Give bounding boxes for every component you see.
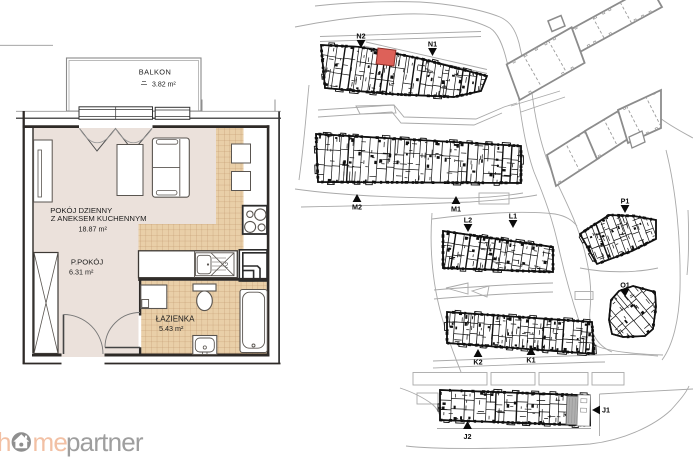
svg-text:K2: K2 bbox=[473, 358, 482, 367]
svg-text:J1: J1 bbox=[602, 406, 610, 415]
svg-text:3.82 m²: 3.82 m² bbox=[152, 82, 176, 89]
svg-text:P.POKÓJ: P.POKÓJ bbox=[71, 258, 103, 267]
svg-text:Z ANEKSEM KUCHENNYM: Z ANEKSEM KUCHENNYM bbox=[51, 214, 147, 223]
svg-text:N1: N1 bbox=[428, 40, 437, 49]
svg-text:N2: N2 bbox=[356, 32, 365, 41]
svg-text:18.87 m²: 18.87 m² bbox=[79, 225, 108, 234]
svg-text:K1: K1 bbox=[526, 356, 535, 365]
svg-text:ŁAZIENKA: ŁAZIENKA bbox=[156, 315, 195, 324]
svg-text:O1: O1 bbox=[620, 281, 630, 290]
svg-text:5.43 m²: 5.43 m² bbox=[159, 324, 184, 333]
svg-text:L1: L1 bbox=[509, 212, 517, 221]
svg-text:L2: L2 bbox=[464, 216, 472, 225]
svg-text:M1: M1 bbox=[451, 205, 461, 214]
svg-text:J2: J2 bbox=[464, 432, 472, 441]
svg-text:BALKON: BALKON bbox=[139, 68, 171, 77]
svg-text:P1: P1 bbox=[621, 197, 630, 206]
svg-text:partner: partner bbox=[66, 427, 144, 457]
svg-text:2: 2 bbox=[225, 263, 229, 270]
svg-text:6.31 m²: 6.31 m² bbox=[69, 267, 94, 276]
svg-text:h: h bbox=[0, 427, 11, 457]
svg-text:me: me bbox=[33, 427, 68, 457]
svg-text:M2: M2 bbox=[352, 203, 362, 212]
